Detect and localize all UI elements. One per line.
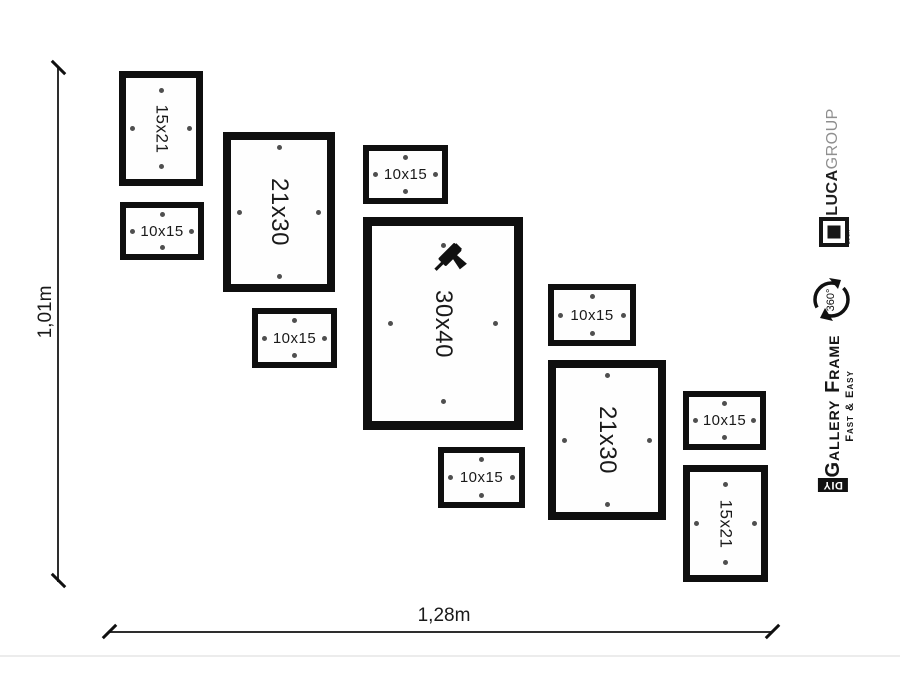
frame-size-label: 10x15 <box>384 166 427 183</box>
mounting-dot <box>160 212 165 217</box>
picture-frame-10x15: 10x15 <box>120 202 204 260</box>
picture-frame-10x15: 10x15 <box>252 308 337 368</box>
mounting-dot <box>723 482 728 487</box>
mounting-dot <box>189 229 194 234</box>
mounting-dot <box>562 438 567 443</box>
mounting-dot <box>605 502 610 507</box>
rotation-degrees-label: 360° <box>825 289 837 312</box>
mounting-dot <box>590 331 595 336</box>
picture-frame-10x15: 10x15 <box>438 447 525 508</box>
frame-size-label: 10x15 <box>460 469 503 486</box>
mounting-dot <box>752 521 757 526</box>
picture-frame-21x30: 21x30 <box>223 132 335 292</box>
mounting-dot <box>605 373 610 378</box>
frame-size-label: 10x15 <box>570 307 613 324</box>
mounting-dot <box>448 475 453 480</box>
mounting-dot <box>693 418 698 423</box>
mounting-dot <box>493 321 498 326</box>
mounting-dot <box>130 126 135 131</box>
product-name: Gallery Frame <box>823 334 843 477</box>
picture-frame-10x15: 10x15 <box>548 284 636 346</box>
page-bottom-edge <box>0 655 900 657</box>
frame-size-label: 15x21 <box>715 499 735 548</box>
logo-tiny-text: LUCA <box>845 230 851 245</box>
frame-size-label: 15x21 <box>151 104 171 153</box>
mounting-dot <box>160 245 165 250</box>
height-dimension-line <box>57 68 59 582</box>
mounting-dot <box>187 126 192 131</box>
power-drill-icon <box>430 236 472 278</box>
mounting-dot <box>292 318 297 323</box>
mounting-dot <box>441 399 446 404</box>
mounting-dot <box>237 210 242 215</box>
frame-size-label: 30x40 <box>429 290 457 358</box>
frame-size-label: 21x30 <box>593 406 621 474</box>
company-name-light: GROUP <box>824 108 841 169</box>
mounting-dot <box>722 401 727 406</box>
mounting-dot <box>647 438 652 443</box>
product-tagline: Fast & Easy <box>843 334 857 477</box>
mounting-dot <box>510 475 515 480</box>
mounting-dot <box>590 294 595 299</box>
mounting-dot <box>479 457 484 462</box>
frame-size-label: 10x15 <box>703 412 746 429</box>
company-name: LUCAGROUP <box>824 108 842 216</box>
height-dimension-label: 1,01m <box>35 286 57 339</box>
mounting-dot <box>130 229 135 234</box>
mounting-dot <box>558 313 563 318</box>
gallery-wall-diagram: 15x2110x1521x3010x1530x4010x1510x1510x15… <box>0 0 900 678</box>
mounting-dot <box>388 321 393 326</box>
frame-size-label: 10x15 <box>140 223 183 240</box>
mounting-dot <box>159 88 164 93</box>
diy-badge: DIY <box>818 478 848 492</box>
product-branding: Gallery Frame Fast & Easy <box>823 334 857 477</box>
mounting-dot <box>277 274 282 279</box>
picture-frame-10x15: 10x15 <box>363 145 448 204</box>
mounting-dot <box>403 155 408 160</box>
picture-frame-10x15: 10x15 <box>683 391 766 450</box>
mounting-dot <box>433 172 438 177</box>
frame-size-label: 21x30 <box>265 178 293 246</box>
mounting-dot <box>322 336 327 341</box>
frame-size-label: 10x15 <box>273 330 316 347</box>
picture-frame-15x21: 15x21 <box>683 465 768 582</box>
mounting-dot <box>159 164 164 169</box>
mounting-dot <box>479 493 484 498</box>
mounting-dot <box>723 560 728 565</box>
mounting-dot <box>277 145 282 150</box>
picture-frame-15x21: 15x21 <box>119 71 203 186</box>
mounting-dot <box>316 210 321 215</box>
mounting-dot <box>751 418 756 423</box>
mounting-dot <box>621 313 626 318</box>
width-dimension-label: 1,28m <box>418 605 471 627</box>
company-name-bold: LUCA <box>824 169 841 215</box>
mounting-dot <box>373 172 378 177</box>
mounting-dot <box>262 336 267 341</box>
mounting-dot <box>292 353 297 358</box>
picture-frame-30x40: 30x40 <box>363 217 523 430</box>
mounting-dot <box>694 521 699 526</box>
logo-inner-square <box>828 226 841 239</box>
mounting-dot <box>722 435 727 440</box>
width-dimension-line <box>110 631 773 633</box>
mounting-dot <box>403 189 408 194</box>
picture-frame-21x30: 21x30 <box>548 360 666 520</box>
